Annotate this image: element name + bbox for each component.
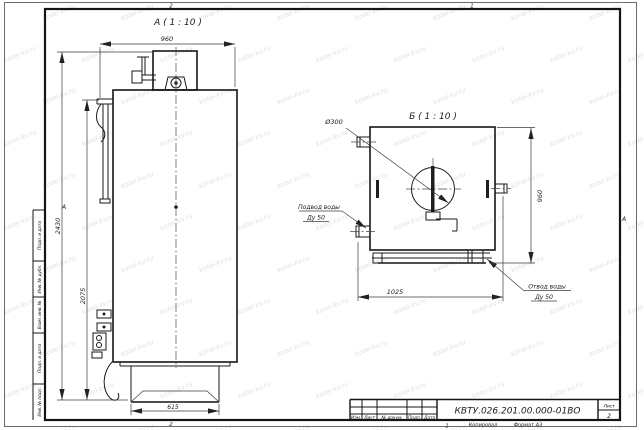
footer-copied: Копировал <box>469 423 498 429</box>
watermark-text: kotel-kv.ru <box>354 2 389 22</box>
watermark-text: kotel-kv.ru <box>120 254 155 274</box>
watermark-text: kotel-kv.ru <box>471 380 506 400</box>
sheet-label: Лист <box>603 404 615 410</box>
watermark-text: kotel-kv.ru <box>354 170 389 190</box>
watermark-text: kotel-kv.ru <box>510 86 545 106</box>
watermark-text: kotel-kv.ru <box>549 44 584 64</box>
watermark-text: kotel-kv.ru <box>237 380 272 400</box>
watermark-text: kotel-kv.ru <box>432 86 467 106</box>
watermark-text: kotel-kv.ru <box>627 380 644 400</box>
watermark-text: kotel-kv.ru <box>81 128 116 148</box>
watermark-text: kotel-kv.ru <box>81 44 116 64</box>
watermark-text: kotel-kv.ru <box>276 254 311 274</box>
margin-cell-2: Взам. инв. № <box>37 300 43 329</box>
watermark-text: kotel-kv.ru <box>42 2 77 22</box>
stub-top-left <box>351 137 376 147</box>
watermark-text: kotel-kv.ru <box>159 380 194 400</box>
dim-depth-value: 960 <box>161 35 173 43</box>
watermark-text: kotel-kv.ru <box>3 128 38 148</box>
stub-inlet <box>350 226 376 237</box>
watermark-text: kotel-kv.ru <box>588 422 623 430</box>
watermark-text: kotel-kv.ru <box>393 296 428 316</box>
dim-base-615: 615 <box>131 404 219 415</box>
watermark-text: kotel-kv.ru <box>354 338 389 358</box>
watermark-text: kotel-kv.ru <box>315 44 350 64</box>
inlet-label: Подвод воды <box>298 204 340 211</box>
watermark-text: kotel-kv.ru <box>393 380 428 400</box>
watermark-text: kotel-kv.ru <box>393 128 428 148</box>
watermark-text: kotel-kv.ru <box>276 86 311 106</box>
watermark-text: kotel-kv.ru <box>432 422 467 430</box>
margin-cell-0: Подп. и дата <box>37 221 43 250</box>
zone-marker-top-right: 1 <box>470 4 474 10</box>
footer-format: Формат А3 <box>514 423 542 429</box>
watermark-text: kotel-kv.ru <box>276 422 311 430</box>
watermark-text: kotel-kv.ru <box>549 128 584 148</box>
watermark-text: kotel-kv.ru <box>237 296 272 316</box>
watermark-text: kotel-kv.ru <box>120 170 155 190</box>
watermark-text: kotel-kv.ru <box>471 44 506 64</box>
watermark-text: kotel-kv.ru <box>198 86 233 106</box>
watermark-text: kotel-kv.ru <box>471 128 506 148</box>
watermark-text: kotel-kv.ru <box>3 380 38 400</box>
watermark-text: kotel-kv.ru <box>432 2 467 22</box>
col-izm: Изм. <box>351 415 361 421</box>
watermark-text: kotel-kv.ru <box>627 212 644 232</box>
dim-height-total-value: 2430 <box>54 218 62 235</box>
side-pipe <box>97 99 114 203</box>
watermark-text: kotel-kv.ru <box>198 2 233 22</box>
base-rear <box>372 250 492 263</box>
watermark-text: kotel-kv.ru <box>315 296 350 316</box>
watermark-text: kotel-kv.ru <box>198 254 233 274</box>
watermark-text: kotel-kv.ru <box>237 212 272 232</box>
margin-cell-3: Подп. и дата <box>37 344 43 373</box>
watermark-text: kotel-kv.ru <box>198 170 233 190</box>
watermark-text: kotel-kv.ru <box>3 296 38 316</box>
damper-shaft <box>431 166 435 212</box>
zone-marker-right: А <box>621 216 626 223</box>
watermark-text: kotel-kv.ru <box>81 380 116 400</box>
watermark-text: kotel-kv.ru <box>510 254 545 274</box>
outlet-label: Отвод воды <box>528 284 566 291</box>
sheet-number: 2 <box>607 413 611 420</box>
outlet-dn: Ду 50 <box>534 294 553 301</box>
watermark-text: kotel-kv.ru <box>588 2 623 22</box>
slot-left <box>376 180 379 198</box>
door-hinges <box>97 310 111 331</box>
watermark-text: kotel-kv.ru <box>588 86 623 106</box>
zone-marker-bottom-left: 2 <box>169 422 173 428</box>
watermark-text: kotel-kv.ru <box>510 170 545 190</box>
watermark-text: kotel-kv.ru <box>432 338 467 358</box>
watermark-text: kotel-kv.ru <box>393 44 428 64</box>
view-b-title: Б ( 1 : 10 ) <box>409 112 457 122</box>
dim-depth-960: 960 <box>100 35 235 98</box>
inner-frame <box>45 9 620 420</box>
watermark-text: kotel-kv.ru <box>549 212 584 232</box>
inlet-dn: Ду 50 <box>306 215 325 222</box>
dim-height-value: 960 <box>536 190 544 202</box>
zone-marker-bottom-right: 1 <box>445 424 449 430</box>
watermark-text: kotel-kv.ru <box>627 44 644 64</box>
drawing-sheet: kotel-kv.rukotel-kv.rukotel-kv.rukotel-k… <box>0 0 644 430</box>
watermark-text: kotel-kv.ru <box>42 86 77 106</box>
watermark-text: kotel-kv.ru <box>237 44 272 64</box>
watermark-text: kotel-kv.ru <box>276 2 311 22</box>
view-a: А ( 1 : 10 ) <box>54 18 237 415</box>
watermark-text: kotel-kv.ru <box>549 380 584 400</box>
col-list: Лист <box>363 415 375 421</box>
col-doc: № докум. <box>380 415 402 421</box>
watermark-text: kotel-kv.ru <box>120 338 155 358</box>
watermark-text: kotel-kv.ru <box>471 296 506 316</box>
hole-diameter-value: Ø300 <box>324 118 343 126</box>
dim-height-960: 960 <box>489 128 544 264</box>
watermark-text: kotel-kv.ru <box>510 338 545 358</box>
watermark-text: kotel-kv.ru <box>393 212 428 232</box>
watermark-text: kotel-kv.ru <box>627 128 644 148</box>
view-a-title: А ( 1 : 10 ) <box>153 18 202 28</box>
title-block: Изм. Лист № докум. Подп. Дата КВТУ.026.2… <box>350 400 620 429</box>
watermark-text: kotel-kv.ru <box>81 212 116 232</box>
watermark-text: kotel-kv.ru <box>120 2 155 22</box>
center-mark <box>174 205 178 209</box>
watermark-text: kotel-kv.ru <box>354 86 389 106</box>
watermark-text: kotel-kv.ru <box>120 422 155 430</box>
watermark-text: kotel-kv.ru <box>354 422 389 430</box>
watermark-text: kotel-kv.ru <box>42 170 77 190</box>
drawing-canvas: kotel-kv.rukotel-kv.rukotel-kv.rukotel-k… <box>0 0 644 430</box>
watermark-text: kotel-kv.ru <box>471 212 506 232</box>
watermark-text: kotel-kv.ru <box>42 338 77 358</box>
watermark-text: kotel-kv.ru <box>315 128 350 148</box>
watermark-text: kotel-kv.ru <box>627 296 644 316</box>
watermark-text: kotel-kv.ru <box>315 380 350 400</box>
watermark-text: kotel-kv.ru <box>42 422 77 430</box>
watermark-text: kotel-kv.ru <box>198 422 233 430</box>
margin-cell-1: Инв. № дубл. <box>37 264 43 293</box>
watermark-text: kotel-kv.ru <box>237 128 272 148</box>
watermark-text: kotel-kv.ru <box>432 170 467 190</box>
slot-right <box>486 180 489 198</box>
dim-height-body-value: 2075 <box>79 288 87 305</box>
dim-width-value: 1025 <box>387 288 404 296</box>
watermark-text: kotel-kv.ru <box>198 338 233 358</box>
watermark-text: kotel-kv.ru <box>588 170 623 190</box>
watermark-text: kotel-kv.ru <box>276 338 311 358</box>
dim-base-value: 615 <box>167 404 179 411</box>
watermark-text: kotel-kv.ru <box>432 254 467 274</box>
watermark-text: kotel-kv.ru <box>42 254 77 274</box>
damper-bracket <box>426 212 457 231</box>
base-plinth <box>120 362 230 402</box>
doc-number: КВТУ.026.201.00.000-01ВО <box>455 407 581 417</box>
watermark-text: kotel-kv.ru <box>549 296 584 316</box>
zone-marker-top-left: 2 <box>169 4 173 10</box>
watermark-text: kotel-kv.ru <box>3 44 38 64</box>
watermark-text: kotel-kv.ru <box>510 2 545 22</box>
col-data: Дата <box>423 415 435 421</box>
outlet-stub <box>468 250 483 263</box>
watermark-text: kotel-kv.ru <box>276 170 311 190</box>
watermark-text: kotel-kv.ru <box>354 254 389 274</box>
margin-cell-4: Инв. № подл. <box>37 387 43 416</box>
watermark-text: kotel-kv.ru <box>588 338 623 358</box>
watermark-text: kotel-kv.ru <box>3 212 38 232</box>
watermark-text: kotel-kv.ru <box>588 254 623 274</box>
stub-right <box>491 184 511 193</box>
watermark-text: kotel-kv.ru <box>120 86 155 106</box>
col-podp: Подп. <box>408 415 421 421</box>
